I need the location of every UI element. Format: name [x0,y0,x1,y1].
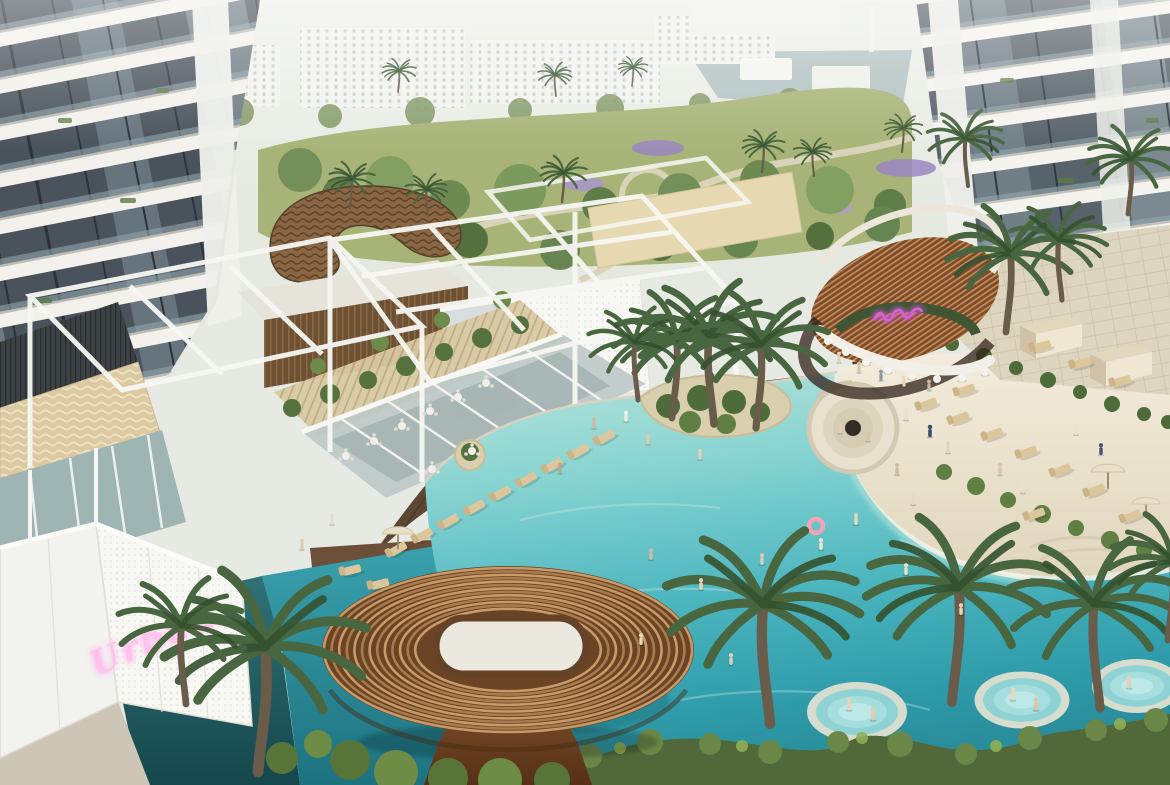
fire-table [845,420,861,436]
person [329,514,335,526]
scene-canvas: Urban [0,0,1170,785]
resort-aerial-rendering: Urban [0,0,1170,785]
spa-pool [807,682,907,742]
atmospheric-haze [0,0,1170,150]
pavilion-pebble-oculus [436,618,586,674]
person [299,539,305,551]
spa-pool [975,672,1070,729]
